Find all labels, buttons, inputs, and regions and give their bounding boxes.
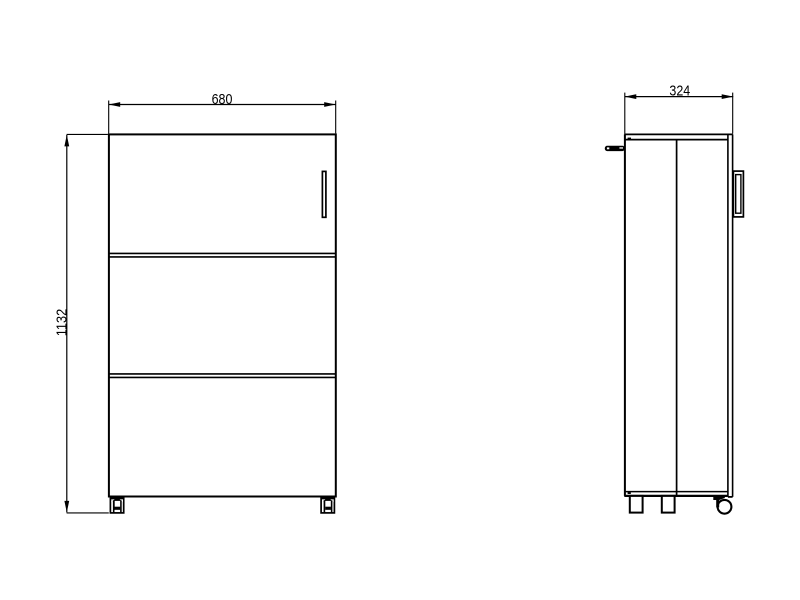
svg-text:324: 324 bbox=[669, 84, 690, 100]
svg-text:680: 680 bbox=[212, 92, 233, 108]
svg-text:1132: 1132 bbox=[54, 309, 70, 337]
